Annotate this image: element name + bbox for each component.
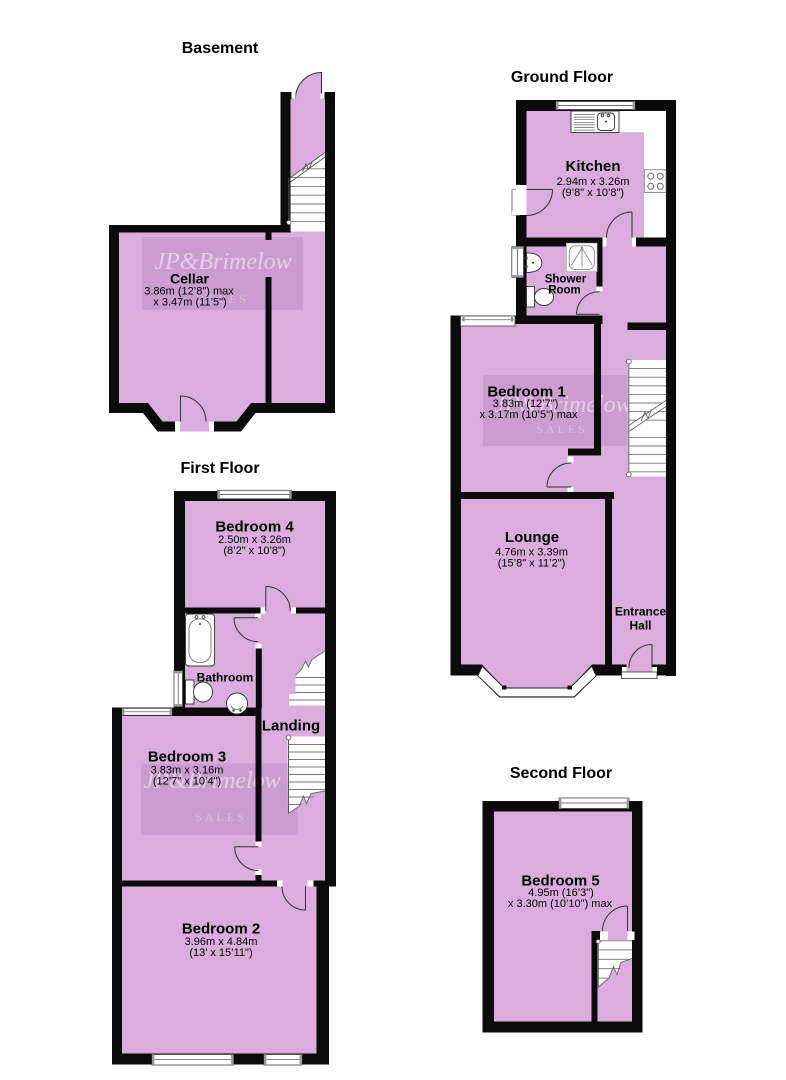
svg-text:(15’8" x 11’2"): (15’8" x 11’2")	[498, 558, 566, 570]
svg-text:Entrance: Entrance	[615, 605, 667, 619]
svg-text:Bedroom 2: Bedroom 2	[182, 921, 260, 938]
svg-text:Ground Floor: Ground Floor	[511, 69, 613, 86]
svg-text:x 3.30m (10’10") max: x 3.30m (10’10") max	[508, 898, 613, 910]
svg-text:Kitchen: Kitchen	[565, 158, 620, 175]
svg-text:Hall: Hall	[629, 619, 651, 633]
svg-text:Second Floor: Second Floor	[510, 765, 612, 782]
svg-text:First Floor: First Floor	[180, 460, 259, 477]
svg-text:(12’7" x 10’4"): (12’7" x 10’4")	[153, 776, 221, 788]
svg-text:(8’2" x 10’8"): (8’2" x 10’8")	[223, 545, 285, 557]
svg-text:SALES: SALES	[195, 810, 247, 824]
svg-text:Lounge: Lounge	[505, 529, 559, 546]
svg-text:Basement: Basement	[182, 40, 259, 57]
svg-text:Landing: Landing	[262, 718, 320, 735]
svg-text:(9’8" x 10’8"): (9’8" x 10’8")	[562, 187, 624, 199]
svg-text:Bedroom 3: Bedroom 3	[148, 749, 226, 766]
svg-text:x 3.47m (11’5"): x 3.47m (11’5")	[153, 297, 226, 309]
svg-text:x 3.17m (10’5") max: x 3.17m (10’5") max	[479, 409, 578, 421]
svg-text:Room: Room	[548, 285, 581, 297]
svg-text:Bathroom: Bathroom	[197, 671, 254, 685]
svg-text:(13’ x 15’11"): (13’ x 15’11")	[189, 947, 252, 959]
svg-text:SALES: SALES	[536, 422, 588, 436]
svg-text:Bedroom 4: Bedroom 4	[215, 519, 294, 536]
svg-text:Cellar: Cellar	[170, 271, 209, 287]
